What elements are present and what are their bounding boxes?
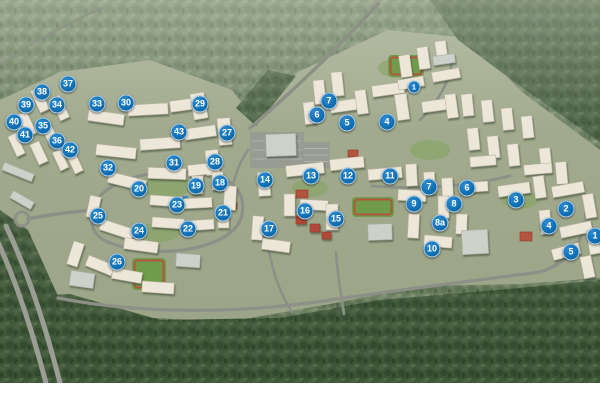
building-marker-19[interactable]: 19	[188, 178, 205, 195]
building-marker-30[interactable]: 30	[118, 95, 135, 112]
building-marker-11[interactable]: 11	[382, 168, 399, 185]
building-marker-34[interactable]: 34	[49, 97, 66, 114]
building-marker-13[interactable]: 13	[303, 168, 320, 185]
building-markers-layer: 3738393433304035413642322943273128201918…	[0, 0, 600, 383]
residential-complex-masterplan: 3738393433304035413642322943273128201918…	[0, 0, 600, 400]
building-marker-28[interactable]: 28	[207, 154, 224, 171]
building-marker-2[interactable]: 2	[558, 201, 575, 218]
building-marker-5[interactable]: 5	[339, 115, 356, 132]
building-marker-4[interactable]: 4	[379, 114, 396, 131]
building-marker-5-2[interactable]: 5	[563, 244, 580, 261]
building-marker-6[interactable]: 6	[309, 107, 326, 124]
building-marker-43[interactable]: 43	[171, 124, 188, 141]
building-marker-12[interactable]: 12	[340, 168, 357, 185]
building-marker-3[interactable]: 3	[508, 192, 525, 209]
building-marker-32[interactable]: 32	[100, 160, 117, 177]
building-marker-33[interactable]: 33	[89, 96, 106, 113]
building-marker-14[interactable]: 14	[257, 172, 274, 189]
building-marker-37[interactable]: 37	[60, 76, 77, 93]
building-marker-17[interactable]: 17	[261, 221, 278, 238]
building-marker-15[interactable]: 15	[328, 211, 345, 228]
building-marker-7[interactable]: 7	[321, 93, 338, 110]
building-marker-25[interactable]: 25	[90, 208, 107, 225]
building-marker-22[interactable]: 22	[180, 221, 197, 238]
building-marker-23[interactable]: 23	[169, 197, 186, 214]
building-marker-39[interactable]: 39	[18, 97, 35, 114]
building-marker-35[interactable]: 35	[35, 118, 52, 135]
building-marker-21[interactable]: 21	[215, 205, 232, 222]
building-marker-38[interactable]: 38	[34, 84, 51, 101]
building-marker-41[interactable]: 41	[17, 127, 34, 144]
building-marker-31[interactable]: 31	[166, 155, 183, 172]
building-marker-20[interactable]: 20	[131, 181, 148, 198]
building-marker-42[interactable]: 42	[62, 142, 79, 159]
building-marker-29[interactable]: 29	[192, 96, 209, 113]
building-marker-6-2[interactable]: 6	[459, 180, 476, 197]
building-marker-1-2[interactable]: 1	[587, 228, 600, 245]
building-marker-18[interactable]: 18	[212, 175, 229, 192]
building-marker-9[interactable]: 9	[406, 196, 423, 213]
building-marker-7-2[interactable]: 7	[421, 179, 438, 196]
building-marker-26[interactable]: 26	[109, 254, 126, 271]
building-marker-8a[interactable]: 8a	[432, 215, 449, 232]
building-marker-8[interactable]: 8	[446, 196, 463, 213]
building-marker-10[interactable]: 10	[424, 241, 441, 258]
building-marker-1[interactable]: 1	[408, 81, 421, 94]
building-marker-4-2[interactable]: 4	[541, 218, 558, 235]
building-marker-16[interactable]: 16	[297, 203, 314, 220]
bottom-whitespace	[0, 383, 600, 400]
building-marker-27[interactable]: 27	[219, 125, 236, 142]
building-marker-24[interactable]: 24	[131, 223, 148, 240]
